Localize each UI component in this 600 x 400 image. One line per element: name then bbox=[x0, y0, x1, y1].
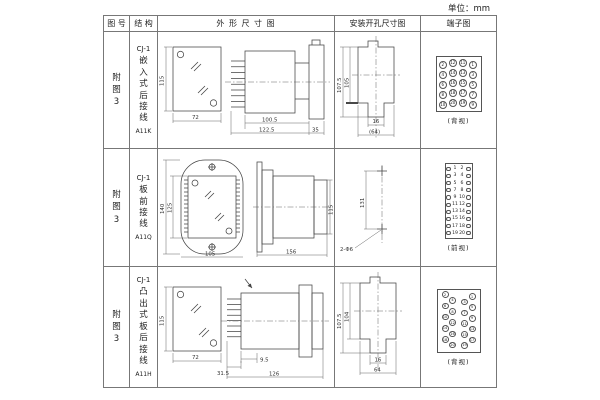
terminal-hole bbox=[466, 195, 470, 199]
dim-front-width: 72 bbox=[192, 355, 199, 361]
cell-install-a11h: 107.5 104 16 64 bbox=[335, 267, 421, 388]
terminal-17: 17 bbox=[452, 224, 458, 229]
cell-outline-a11h: 115 72 9.5 31.5 126 bbox=[158, 267, 335, 388]
terminal-2: 2 bbox=[442, 291, 449, 298]
dim-side-length: 156 bbox=[286, 250, 297, 256]
terminal-18: 18 bbox=[442, 336, 449, 343]
terminal-hole bbox=[446, 195, 450, 199]
terminal-14: 14 bbox=[449, 69, 458, 78]
outline-drawing-a11q: 140 125 105 156 115 bbox=[159, 155, 334, 260]
dim-cutout-outer: 107.5 bbox=[337, 77, 343, 92]
terminal-11: 11 bbox=[452, 202, 458, 207]
dim-gap: 9.5 bbox=[260, 358, 269, 364]
cell-terminal-a11h: 2468101214161820135791113151719 (背视) bbox=[421, 267, 497, 388]
terminal-7: 7 bbox=[461, 310, 468, 317]
dim-front-width: 72 bbox=[192, 115, 199, 121]
side-view bbox=[253, 162, 331, 252]
catalog-page: 单位：mm 图 号 结 构 外 形 尺 寸 图 安装开孔尺寸图 端子图 附图3 … bbox=[0, 0, 600, 400]
terminal-18: 18 bbox=[459, 224, 465, 229]
dim-pin-length: 31.5 bbox=[217, 371, 229, 377]
install-drawing-a11h: 107.5 104 16 64 bbox=[336, 267, 420, 387]
model-label: CJ-1 bbox=[137, 174, 151, 182]
terminal-17: 17 bbox=[469, 337, 476, 344]
terminal-3: 3 bbox=[461, 299, 468, 306]
dim-hole-pitch: 131 bbox=[360, 198, 366, 208]
dim-front-height: 115 bbox=[159, 75, 165, 85]
terminal-20: 20 bbox=[449, 99, 458, 108]
terminal-16: 16 bbox=[449, 79, 458, 88]
cell-install-a11q: 131 2-Φ6 bbox=[335, 149, 421, 267]
terminal-6: 6 bbox=[442, 303, 449, 310]
dim-cutout-inner: 105 bbox=[344, 77, 350, 87]
dim-hole-width: (64) bbox=[369, 129, 380, 135]
cell-terminal-a11q: 1234567891011121314151617181920 (前视) bbox=[421, 149, 497, 267]
dim-front-inner-height: 125 bbox=[167, 203, 173, 213]
hole-spec-label: 2-Φ6 bbox=[340, 247, 354, 253]
terminal-hole bbox=[446, 210, 450, 214]
terminal-19: 19 bbox=[461, 342, 468, 349]
outline-drawing-a11k: 115 72 100.5 122.5 35 bbox=[159, 33, 334, 148]
terminal-5: 5 bbox=[454, 181, 457, 186]
outline-drawing-a11h: 115 72 9.5 31.5 126 bbox=[159, 267, 334, 387]
terminal-10: 10 bbox=[439, 101, 448, 110]
dim-total-length: 126 bbox=[269, 372, 280, 378]
centerlines bbox=[354, 272, 402, 371]
terminal-8: 8 bbox=[439, 91, 448, 100]
cell-figure-no-a11k: 附图3 bbox=[104, 32, 130, 149]
terminal-3: 3 bbox=[469, 71, 478, 80]
terminal-20: 20 bbox=[449, 342, 456, 349]
model-label: CJ-1 bbox=[137, 45, 151, 53]
terminal-hole bbox=[466, 181, 470, 185]
terminal-hole bbox=[466, 210, 470, 214]
terminal-6: 6 bbox=[461, 181, 464, 186]
front-view bbox=[181, 160, 243, 254]
side-view bbox=[221, 279, 329, 357]
terminal-17: 17 bbox=[459, 89, 468, 98]
terminal-hole bbox=[446, 217, 450, 221]
terminal-4: 4 bbox=[461, 173, 464, 178]
dim-notch-width: 16 bbox=[372, 119, 379, 125]
terminal-2: 2 bbox=[439, 61, 448, 70]
install-dim-lines bbox=[340, 47, 394, 137]
terminal-9: 9 bbox=[469, 315, 476, 322]
cell-structure-a11q: CJ-1 板前接线 A11Q bbox=[130, 149, 158, 267]
terminal-12: 12 bbox=[459, 202, 465, 207]
dim-hole-width: 64 bbox=[374, 368, 381, 374]
install-drawing-a11k: 107.5 105 16 (64) bbox=[336, 33, 420, 148]
terminal-4: 4 bbox=[439, 71, 448, 80]
terminal-hole bbox=[466, 217, 470, 221]
mounting-desc: 凸出式板后接线 bbox=[139, 287, 148, 367]
terminal-view-label: (背视) bbox=[447, 356, 469, 366]
terminal-hole bbox=[446, 174, 450, 178]
terminal-15: 15 bbox=[459, 79, 468, 88]
terminal-hole bbox=[466, 231, 470, 235]
terminal-19: 19 bbox=[459, 99, 468, 108]
mounting-desc: 板前接线 bbox=[139, 185, 148, 231]
terminal-hole bbox=[466, 167, 470, 171]
side-view-dim-lines bbox=[231, 111, 324, 135]
cell-outline-a11q: 140 125 105 156 115 bbox=[158, 149, 335, 267]
terminal-14: 14 bbox=[459, 209, 465, 214]
terminal-13: 13 bbox=[459, 69, 468, 78]
mounting-desc: 嵌入式后接线 bbox=[139, 56, 148, 125]
terminal-hole bbox=[466, 203, 470, 207]
terminal-1: 1 bbox=[469, 61, 478, 70]
terminal-19: 19 bbox=[452, 231, 458, 236]
dim-cutout-inner: 104 bbox=[344, 311, 350, 322]
terminal-16: 16 bbox=[459, 216, 465, 221]
terminal-hole bbox=[466, 174, 470, 178]
type-code: A11H bbox=[135, 371, 151, 378]
terminal-column-right: 135791113151719 bbox=[461, 295, 476, 349]
terminal-16: 16 bbox=[449, 331, 456, 338]
model-label: CJ-1 bbox=[137, 276, 151, 284]
terminal-11: 11 bbox=[459, 59, 468, 68]
type-code: A11K bbox=[136, 128, 152, 135]
terminal-20: 20 bbox=[459, 231, 465, 236]
cell-terminal-a11k: 2121114141336161558181771020199 (背视) bbox=[421, 32, 497, 149]
dim-body-length: 100.5 bbox=[262, 117, 277, 123]
terminal-hole bbox=[446, 188, 450, 192]
figure-no: 附图3 bbox=[112, 189, 121, 226]
install-dim-lines bbox=[355, 171, 381, 248]
terminal-block-front: 1234567891011121314151617181920 bbox=[445, 163, 473, 239]
dim-front-height: 115 bbox=[159, 316, 165, 326]
terminal-hole bbox=[466, 188, 470, 192]
figure-no: 附图3 bbox=[112, 309, 121, 346]
terminal-hole bbox=[446, 224, 450, 228]
terminal-view-label: (前视) bbox=[447, 242, 469, 252]
side-view bbox=[225, 40, 330, 119]
cell-install-a11k: 107.5 105 16 (64) bbox=[335, 32, 421, 149]
terminal-hole bbox=[466, 224, 470, 228]
dim-total-length: 122.5 bbox=[259, 127, 274, 133]
header-structure: 结 构 bbox=[130, 16, 158, 32]
terminal-12: 12 bbox=[449, 319, 456, 326]
cell-outline-a11k: 115 72 100.5 122.5 35 bbox=[158, 32, 335, 149]
dimension-table: 图 号 结 构 外 形 尺 寸 图 安装开孔尺寸图 端子图 附图3 CJ-1 嵌… bbox=[103, 15, 497, 388]
terminal-hole bbox=[446, 181, 450, 185]
terminal-8: 8 bbox=[461, 188, 464, 193]
terminal-4: 4 bbox=[449, 297, 456, 304]
terminal-6: 6 bbox=[439, 81, 448, 90]
terminal-column-left: 2468101214161820 bbox=[442, 293, 457, 349]
terminal-hole bbox=[446, 203, 450, 207]
side-view-dim-lines bbox=[257, 180, 333, 257]
front-view bbox=[173, 47, 221, 111]
header-outline-dims: 外 形 尺 寸 图 bbox=[158, 16, 335, 32]
terminal-15: 15 bbox=[461, 331, 468, 338]
terminal-13: 13 bbox=[469, 326, 476, 333]
dim-front-outer-height: 140 bbox=[160, 203, 166, 214]
header-terminal-diagram: 端子图 bbox=[421, 16, 497, 32]
terminal-view-label: (背视) bbox=[447, 115, 469, 125]
terminal-8: 8 bbox=[449, 308, 456, 315]
terminal-9: 9 bbox=[454, 195, 457, 200]
install-drawing-a11q: 131 2-Φ6 bbox=[336, 155, 420, 260]
cell-structure-a11k: CJ-1 嵌入式后接线 A11K bbox=[130, 32, 158, 149]
terminal-15: 15 bbox=[452, 216, 458, 221]
terminal-9: 9 bbox=[469, 101, 478, 110]
panel-cutout bbox=[346, 41, 394, 117]
front-view bbox=[173, 287, 221, 351]
terminal-7: 7 bbox=[454, 188, 457, 193]
figure-no: 附图3 bbox=[112, 72, 121, 109]
unit-label: 单位：mm bbox=[445, 2, 493, 16]
front-view-dim-lines bbox=[164, 47, 221, 123]
terminal-11: 11 bbox=[461, 320, 468, 327]
install-dim-lines bbox=[340, 283, 396, 375]
dim-flange-depth: 35 bbox=[312, 127, 319, 133]
terminal-1: 1 bbox=[469, 293, 476, 300]
cell-structure-a11h: CJ-1 凸出式板后接线 A11H bbox=[130, 267, 158, 388]
terminal-13: 13 bbox=[452, 209, 458, 214]
terminal-5: 5 bbox=[469, 81, 478, 90]
terminal-7: 7 bbox=[469, 91, 478, 100]
dim-notch-width: 16 bbox=[374, 358, 381, 364]
terminal-hole bbox=[446, 167, 450, 171]
dim-front-width: 105 bbox=[205, 252, 215, 258]
terminal-block-rear: 2468101214161820135791113151719 bbox=[437, 289, 481, 353]
header-install-dims: 安装开孔尺寸图 bbox=[335, 16, 421, 32]
terminal-10: 10 bbox=[459, 195, 465, 200]
cell-figure-no-a11q: 附图3 bbox=[104, 149, 130, 267]
terminal-18: 18 bbox=[449, 89, 458, 98]
type-code: A11Q bbox=[135, 234, 151, 241]
terminal-5: 5 bbox=[469, 304, 476, 311]
terminal-3: 3 bbox=[454, 173, 457, 178]
dim-cutout-outer: 107.5 bbox=[337, 314, 343, 329]
terminal-1: 1 bbox=[454, 166, 457, 171]
cell-figure-no-a11h: 附图3 bbox=[104, 267, 130, 388]
front-view-dim-lines bbox=[164, 287, 221, 363]
terminal-14: 14 bbox=[442, 325, 449, 332]
terminal-block-rear: 2121114141336161558181771020199 bbox=[436, 56, 482, 112]
terminal-10: 10 bbox=[442, 314, 449, 321]
front-view-dim-lines bbox=[163, 160, 243, 257]
header-figure-no: 图 号 bbox=[104, 16, 130, 32]
terminal-12: 12 bbox=[449, 59, 458, 68]
terminal-2: 2 bbox=[461, 166, 464, 171]
terminal-hole bbox=[446, 231, 450, 235]
dim-side-height: 115 bbox=[328, 205, 334, 215]
